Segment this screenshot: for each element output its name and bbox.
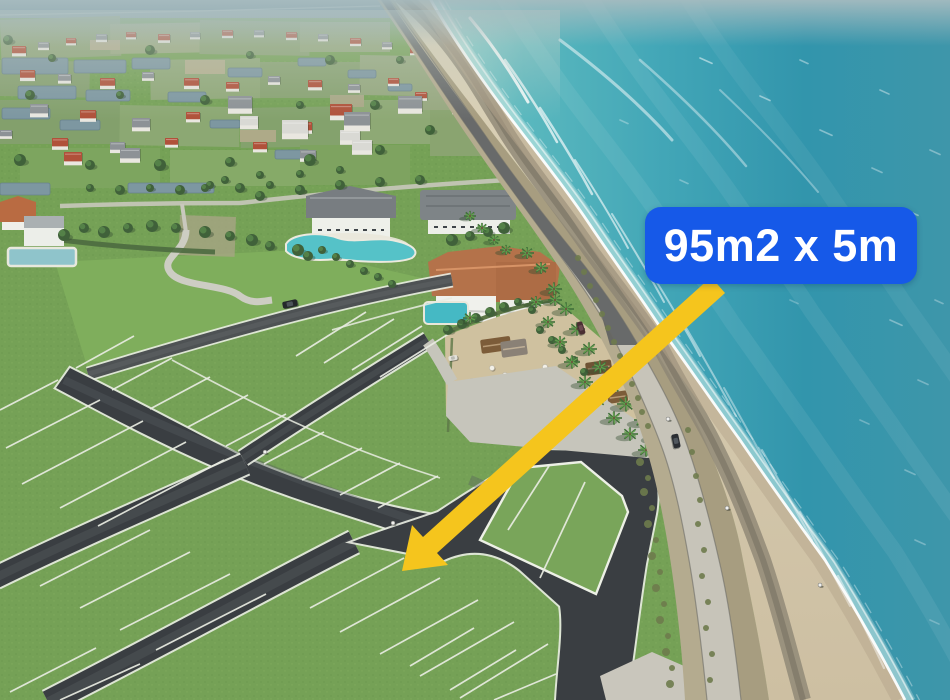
size-label: 95m2 x 5m	[664, 223, 899, 268]
size-label-badge: 95m2 x 5m	[645, 207, 917, 284]
aerial-photo	[0, 0, 950, 700]
horizon-haze	[0, 0, 950, 46]
aerial-photo-screenshot: 95m2 x 5m	[0, 0, 950, 700]
